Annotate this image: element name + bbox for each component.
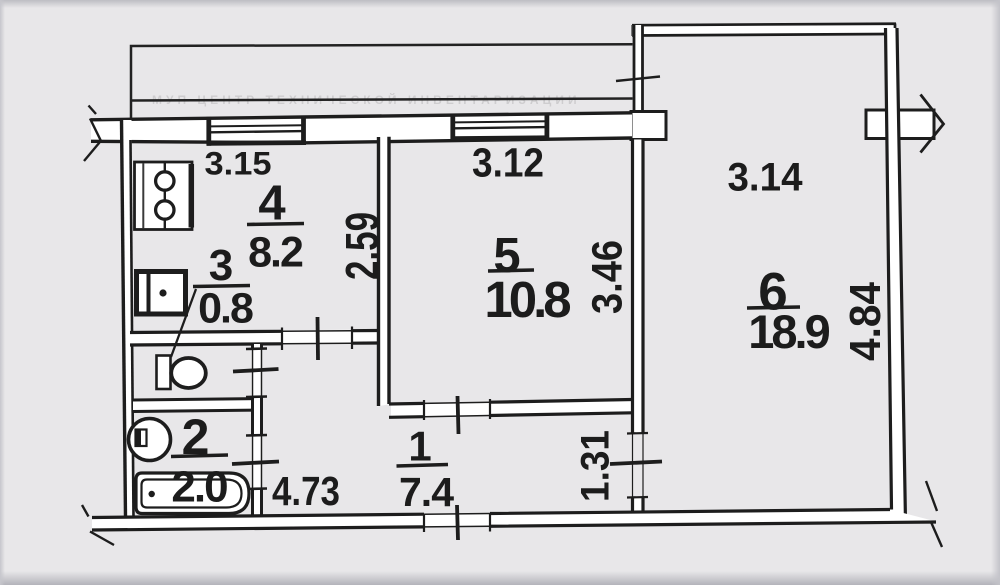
svg-text:0.8: 0.8	[198, 285, 253, 333]
svg-text:3.14: 3.14	[728, 156, 804, 200]
svg-text:18.9: 18.9	[748, 305, 829, 358]
svg-text:1: 1	[408, 423, 431, 470]
svg-text:7.4: 7.4	[399, 469, 454, 515]
svg-text:4.84: 4.84	[841, 282, 890, 361]
svg-text:3.15: 3.15	[205, 145, 272, 181]
svg-text:8.2: 8.2	[248, 229, 303, 277]
svg-text:2.59: 2.59	[336, 212, 388, 280]
svg-text:3.46: 3.46	[584, 240, 632, 314]
svg-text:2.0: 2.0	[171, 462, 227, 511]
svg-text:3.12: 3.12	[472, 140, 544, 186]
svg-text:1.31: 1.31	[574, 430, 618, 502]
svg-text:10.8: 10.8	[484, 271, 570, 328]
svg-text:4.73: 4.73	[272, 468, 340, 514]
svg-text:3: 3	[209, 241, 233, 290]
